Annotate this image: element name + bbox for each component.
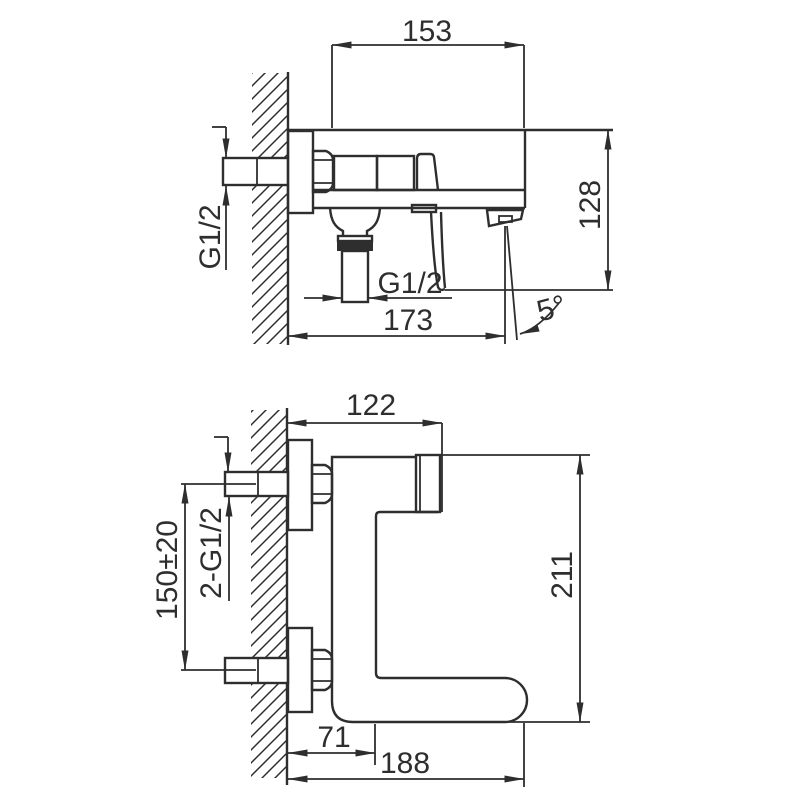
inlet-pipe xyxy=(223,158,288,185)
wall-hatching xyxy=(251,410,287,472)
outlet-collar xyxy=(337,241,373,251)
front-view: 122 2-G1/2 150±20 xyxy=(151,389,590,787)
wall-hatching xyxy=(252,186,288,344)
top-width-label: 153 xyxy=(402,15,452,48)
spout-outlet xyxy=(330,208,380,302)
wall-section xyxy=(252,72,288,345)
faucet-dimension-drawing: G1/2 xyxy=(0,0,800,800)
bottom-width-label: 173 xyxy=(383,304,433,337)
handle-boss xyxy=(487,210,523,344)
dimension-bottom-width: 173 xyxy=(288,304,505,337)
wall-hatching xyxy=(251,496,287,658)
dimension-right-height: 128 xyxy=(445,130,613,290)
wall-hatching xyxy=(252,73,288,158)
wall-hatching xyxy=(251,683,287,778)
outlet-thread-label: G1/2 xyxy=(377,267,442,300)
inlet-thread-label: G1/2 xyxy=(194,204,227,269)
dimension-inlet-thread: G1/2 xyxy=(194,127,227,270)
connection-thread-label: 2-G1/2 xyxy=(195,507,228,599)
valve-cartridge xyxy=(334,154,438,190)
spout-reach-label: 188 xyxy=(380,747,430,780)
dimension-right-height: 211 xyxy=(440,455,590,722)
mounting-nut xyxy=(313,151,333,192)
dimension-wall-to-front: 71 xyxy=(288,721,375,765)
faucet-body xyxy=(288,130,613,212)
dimension-outlet-thread: G1/2 xyxy=(304,267,452,300)
wall-to-front-label: 71 xyxy=(317,721,350,754)
dimension-top-width: 122 xyxy=(287,389,442,512)
wall-flange xyxy=(288,131,313,213)
top-width-label: 122 xyxy=(346,389,396,422)
right-height-label: 128 xyxy=(574,180,607,230)
connection-spacing-label: 150±20 xyxy=(151,520,184,620)
right-height-label: 211 xyxy=(546,551,579,599)
wall-section xyxy=(251,408,287,785)
faucet-body xyxy=(332,455,527,722)
dimension-connection-thread: 2-G1/2 xyxy=(195,437,229,601)
dimension-handle-angle: 5° xyxy=(520,289,570,334)
dimension-top-width: 153 xyxy=(332,15,524,128)
technical-drawing-page: G1/2 xyxy=(0,0,800,800)
side-view: G1/2 xyxy=(194,15,613,345)
